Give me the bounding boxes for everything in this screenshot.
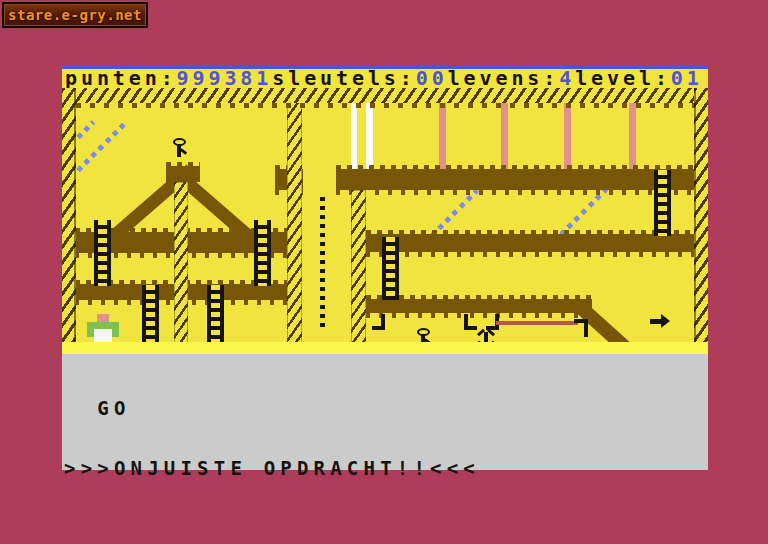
game-screen[interactable]: punten:999381sleutels:00levens:4level:01 xyxy=(62,66,708,470)
chain-line xyxy=(320,197,325,332)
exit-arrow-icon xyxy=(650,314,670,330)
level-area xyxy=(62,88,708,342)
ladder xyxy=(94,220,111,286)
status-value: 999381 xyxy=(177,66,273,90)
status-label: level: xyxy=(575,66,671,90)
status-label: sleutels: xyxy=(272,66,415,90)
pink-pole xyxy=(629,103,636,170)
white-pole xyxy=(351,102,357,169)
status-bar: punten:999381sleutels:00levens:4level:01 xyxy=(62,66,708,88)
pillar xyxy=(287,88,302,353)
key-icon xyxy=(172,138,188,158)
player-hand xyxy=(87,329,94,337)
platform xyxy=(336,169,694,190)
pillar xyxy=(351,190,366,353)
ladder xyxy=(254,220,271,286)
console: GO >>>ONJUISTE OPDRACHT!!<<< FV F >>>ONJ… xyxy=(62,354,708,470)
page-background: stare.e-gry.net punten:999381sleutels:00… xyxy=(0,0,768,544)
separator-strip xyxy=(62,342,708,354)
player-arms xyxy=(87,322,119,329)
player-hand xyxy=(112,329,119,337)
white-pole xyxy=(366,102,373,169)
rain-line xyxy=(76,120,95,139)
platform xyxy=(366,234,694,252)
status-label: levens: xyxy=(448,66,560,90)
hatch-border-right xyxy=(694,88,708,342)
roof-peak xyxy=(166,166,200,182)
hook-icon xyxy=(372,314,385,330)
console-line xyxy=(64,520,708,536)
console-line: >>>ONJUISTE OPDRACHT!!<<< xyxy=(64,460,708,476)
hatch-border-top xyxy=(62,88,708,103)
platform xyxy=(75,284,301,300)
pink-pole xyxy=(564,103,571,170)
status-value: 01 xyxy=(671,66,703,90)
rope-line xyxy=(496,321,578,325)
hatch-border-left xyxy=(62,88,76,342)
status-value: 00 xyxy=(416,66,448,90)
pink-pole xyxy=(439,103,446,170)
player-body xyxy=(94,329,112,342)
hook-icon xyxy=(574,319,588,337)
console-line: GO xyxy=(64,400,708,416)
pink-pole xyxy=(501,103,508,170)
status-label: punten: xyxy=(65,66,177,90)
platform xyxy=(366,299,592,313)
watermark-logo: stare.e-gry.net xyxy=(2,2,148,28)
pillar xyxy=(174,182,188,354)
ladder xyxy=(654,170,671,236)
status-value: 4 xyxy=(559,66,575,90)
ladder xyxy=(382,237,399,300)
